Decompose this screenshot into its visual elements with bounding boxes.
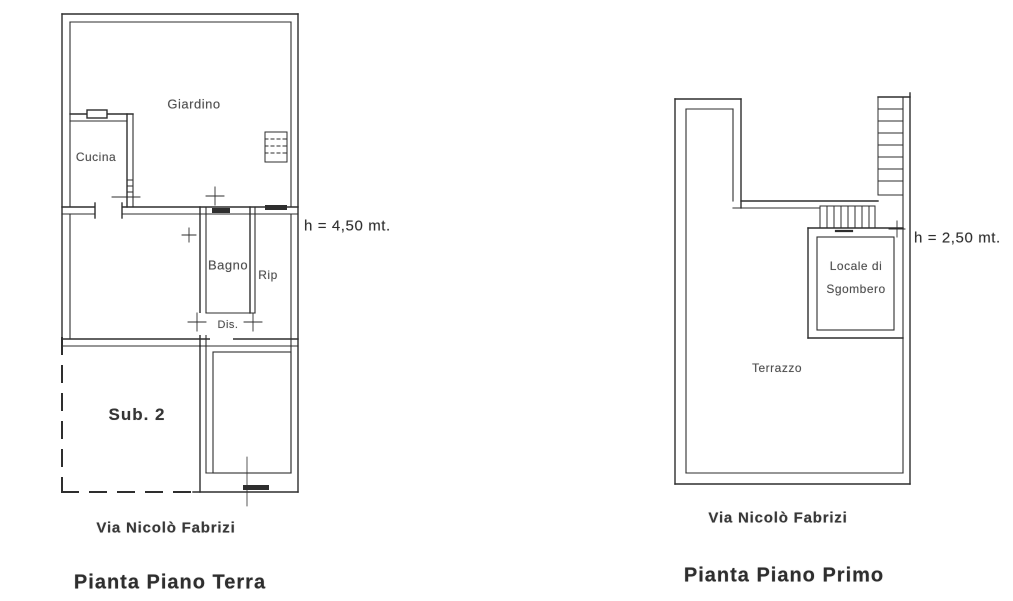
ground-floor-outer-walls: [62, 14, 298, 492]
first-floor-staircase-symbol: [878, 97, 903, 195]
plan-title-first-floor: Pianta Piano Primo: [684, 565, 884, 588]
room-label-giardino: Giardino: [167, 97, 220, 112]
ground-floor-mid-wall: [62, 203, 298, 218]
street-label-ground-floor: Via Nicolò Fabrizi: [96, 520, 235, 537]
garden-staircase-symbol: [265, 132, 287, 162]
ground-floor-interior-walls: [62, 207, 298, 492]
ground-floor-plan-drawing: [62, 14, 298, 506]
stair-run-symbol: [820, 206, 875, 231]
room-label-sub2: Sub. 2: [108, 405, 165, 425]
room-label-bagno: Bagno: [208, 258, 248, 273]
room-label-rip: Rip: [258, 268, 278, 282]
room-label-dis: Dis.: [218, 319, 239, 331]
plan-title-ground-floor: Pianta Piano Terra: [74, 572, 266, 595]
lower-room-inner-outline: [213, 352, 291, 506]
room-label-locale-line1: Locale di: [830, 259, 883, 273]
room-label-cucina: Cucina: [76, 150, 116, 164]
street-label-first-floor: Via Nicolò Fabrizi: [708, 510, 847, 527]
floorplan-document-page: Giardino Cucina Bagno Rip Dis. Sub. 2 h …: [0, 0, 1013, 601]
floorplan-drawings: [0, 0, 1013, 601]
height-note-first-floor: h = 2,50 mt.: [914, 230, 1001, 247]
room-label-terrazzo: Terrazzo: [752, 361, 802, 375]
height-note-ground-floor: h = 4,50 mt.: [304, 218, 391, 235]
room-label-locale-line2: Sgombero: [826, 282, 885, 296]
